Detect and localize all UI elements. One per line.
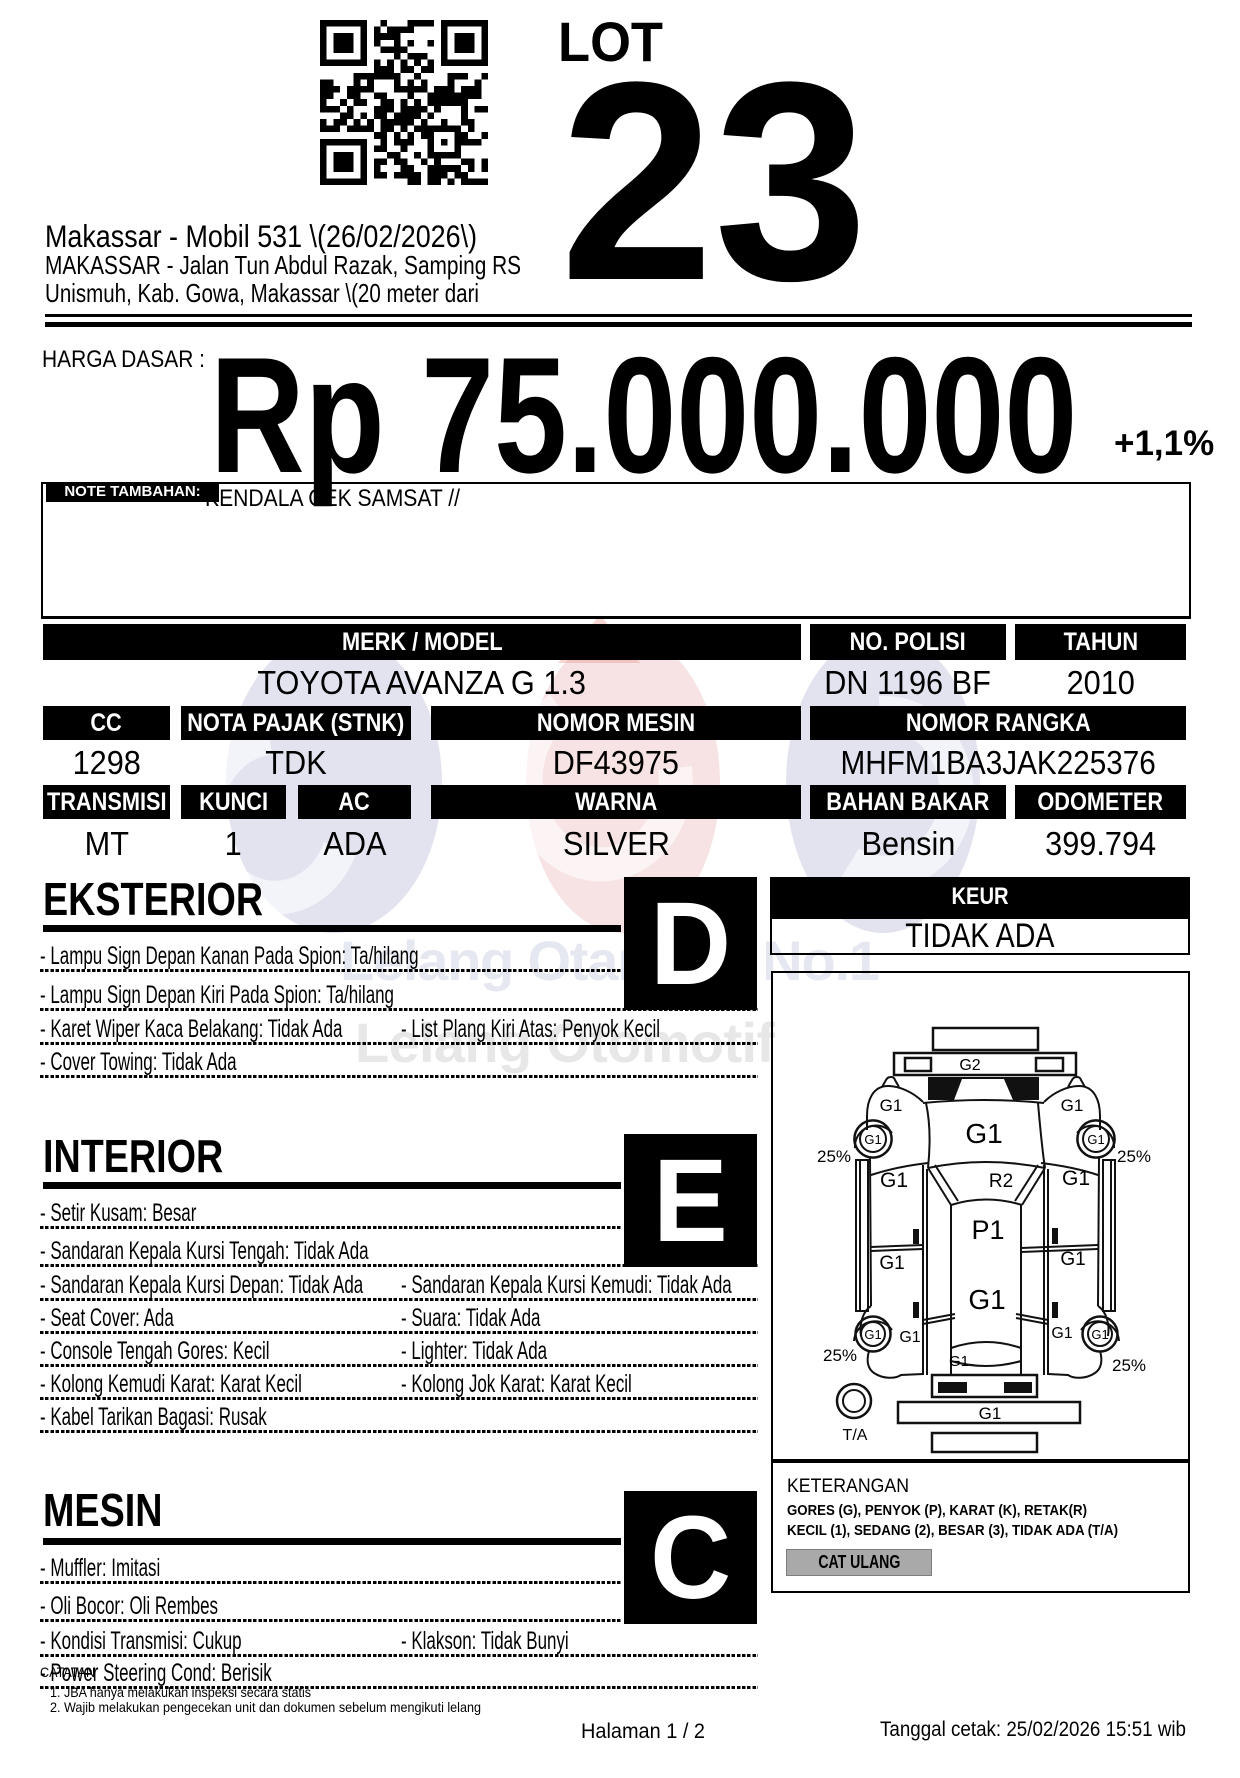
- svg-text:G1: G1: [1062, 1167, 1090, 1190]
- svg-text:G1: G1: [965, 1118, 1002, 1149]
- svg-text:G1: G1: [899, 1329, 920, 1346]
- svg-text:G1: G1: [1051, 1325, 1072, 1342]
- svg-text:T/A: T/A: [843, 1427, 868, 1444]
- svg-text:25%: 25%: [1112, 1356, 1146, 1375]
- svg-text:P1: P1: [971, 1215, 1004, 1245]
- svg-text:G1: G1: [1060, 1249, 1085, 1270]
- svg-text:25%: 25%: [1117, 1147, 1151, 1166]
- svg-text:G1: G1: [968, 1284, 1005, 1315]
- svg-text:G1: G1: [880, 1169, 908, 1192]
- svg-text:G2: G2: [959, 1057, 980, 1074]
- svg-text:G1: G1: [864, 1132, 881, 1147]
- svg-text:G1: G1: [1087, 1132, 1104, 1147]
- svg-text:G1: G1: [879, 1253, 904, 1274]
- svg-text:G1: G1: [1091, 1327, 1108, 1342]
- svg-text:R2: R2: [989, 1171, 1013, 1192]
- svg-text:25%: 25%: [823, 1346, 857, 1365]
- svg-text:G1: G1: [1061, 1096, 1084, 1115]
- svg-text:G1: G1: [864, 1327, 881, 1342]
- svg-text:G1: G1: [979, 1404, 1002, 1423]
- svg-text:G1: G1: [949, 1353, 969, 1370]
- svg-text:G1: G1: [880, 1096, 903, 1115]
- svg-text:25%: 25%: [817, 1147, 851, 1166]
